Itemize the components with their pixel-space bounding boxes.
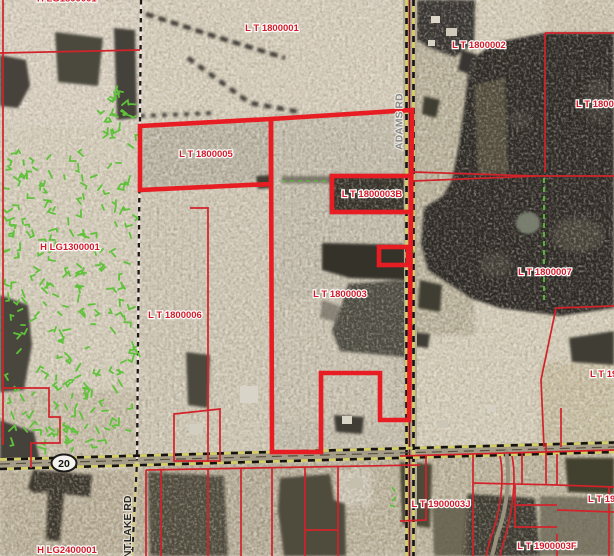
svg-text:H LG1300001: H LG1300001 (40, 242, 100, 253)
svg-text:L T 19000: L T 19000 (588, 494, 614, 505)
svg-text:H LG2400001: H LG2400001 (37, 545, 97, 556)
svg-text:L T 1800: L T 1800 (576, 99, 614, 110)
svg-text:L T 1800007: L T 1800007 (518, 267, 572, 278)
svg-text:L T 1800006: L T 1800006 (148, 310, 202, 321)
svg-text:L T 1900003F: L T 1900003F (517, 541, 577, 552)
svg-text:ADAMS RD: ADAMS RD (394, 93, 406, 150)
svg-text:NT.LAKE RD: NT.LAKE RD (122, 495, 134, 556)
svg-text:L T 1800001: L T 1800001 (245, 23, 299, 34)
svg-text:L T 1800003B: L T 1800003B (342, 189, 403, 200)
svg-text:20: 20 (58, 458, 70, 470)
svg-text:L T 1900003J: L T 1900003J (412, 499, 471, 510)
svg-text:L T 1800003: L T 1800003 (313, 289, 367, 300)
svg-text:H LG1800001: H LG1800001 (37, 0, 97, 5)
svg-text:L T 19: L T 19 (590, 369, 614, 380)
svg-text:L T 1800002: L T 1800002 (452, 40, 506, 51)
svg-text:L T 1800005: L T 1800005 (179, 149, 233, 160)
